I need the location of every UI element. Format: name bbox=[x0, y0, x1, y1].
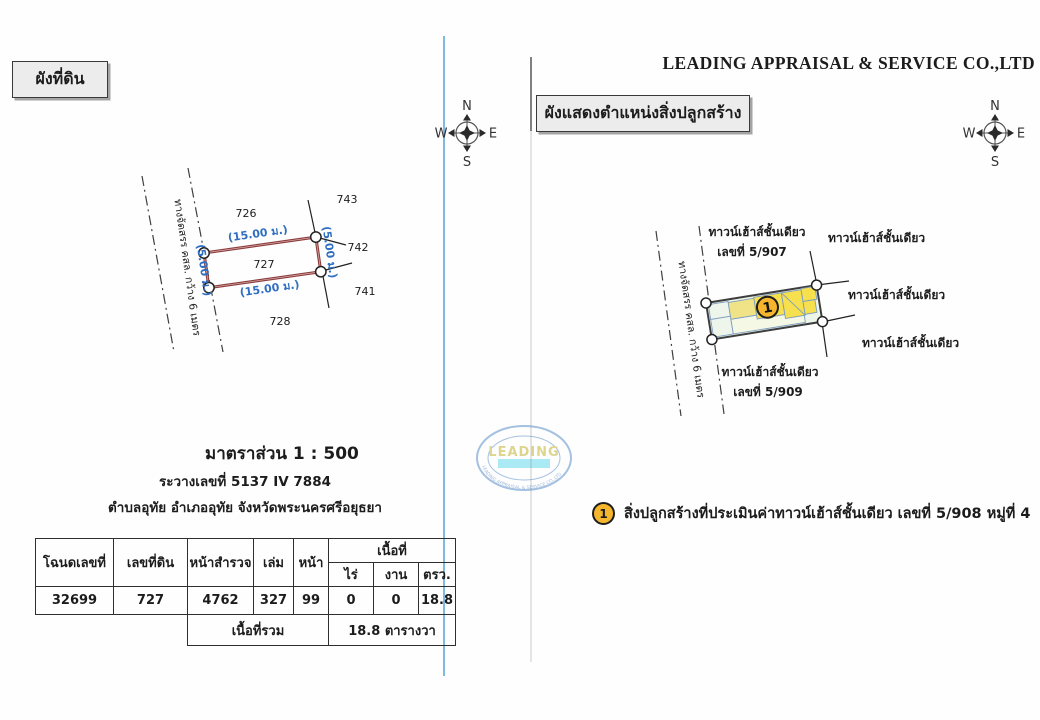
building-plot: 1 bbox=[700, 279, 828, 345]
col-parcel-no: เลขที่ดิน bbox=[114, 539, 188, 587]
parcel-743: 743 bbox=[337, 193, 358, 206]
col-deed-no: โฉนดเลขที่ bbox=[36, 539, 114, 587]
col-sqwah: ตรว. bbox=[419, 563, 456, 587]
location-line: ตำบลอุทัย อำเภออุทัย จังหวัดพระนครศรีอยุ… bbox=[30, 496, 460, 518]
compass-right: N S W E bbox=[963, 99, 1026, 170]
compass-e-label: E bbox=[1017, 127, 1025, 142]
left-title-text: ผังที่ดิน bbox=[35, 67, 84, 92]
compass-w-label: W bbox=[435, 127, 448, 142]
cell-volume: 327 bbox=[254, 587, 294, 615]
legend-marker-number: 1 bbox=[599, 507, 607, 521]
scale-label: มาตราส่วน 1 : 500 bbox=[205, 440, 359, 467]
company-header: LEADING APPRAISAL & SERVICE CO.,LTD bbox=[515, 53, 1035, 74]
cell-ngan: 0 bbox=[374, 587, 419, 615]
cell-survey-page: 4762 bbox=[188, 587, 254, 615]
legend-marker-circle: 1 bbox=[592, 502, 615, 525]
cell-total-label: เนื้อที่รวม bbox=[188, 615, 329, 646]
parcel-741: 741 bbox=[355, 285, 376, 298]
label-bottom-townhouse: ทาวน์เฮ้าส์ชั้นเดียว bbox=[721, 362, 818, 379]
compass-s-label: S bbox=[991, 155, 999, 170]
legend-text: สิ่งปลูกสร้างที่ประเมินค่าทาวน์เฮ้าส์ชั้… bbox=[624, 502, 1031, 525]
cell-parcel-no: 727 bbox=[114, 587, 188, 615]
parcel-726: 726 bbox=[236, 207, 257, 220]
col-rai: ไร่ bbox=[329, 563, 374, 587]
compass-n-label: N bbox=[462, 99, 472, 114]
right-panel-title: ผังแสดงตำแหน่งสิ่งปลูกสร้าง bbox=[536, 95, 750, 132]
parcel-742: 742 bbox=[348, 241, 369, 254]
table-ghost-cell bbox=[36, 615, 188, 646]
label-bottomright-townhouse: ทาวน์เฮ้าส์ชั้นเดียว bbox=[862, 333, 959, 350]
watermark-name: LEADING bbox=[488, 445, 559, 460]
deed-table: โฉนดเลขที่ เลขที่ดิน หน้าสำรวจ เล่ม หน้า… bbox=[35, 538, 456, 646]
cell-rai: 0 bbox=[329, 587, 374, 615]
col-ngan: งาน bbox=[374, 563, 419, 587]
label-top-townhouse: ทาวน์เฮ้าส์ชั้นเดียว bbox=[708, 222, 805, 239]
col-area-group: เนื้อที่ bbox=[329, 539, 456, 563]
compass-n-label: N bbox=[990, 99, 1000, 114]
sheet-number: ระวางเลขที่ 5137 IV 7884 bbox=[30, 470, 460, 492]
cell-total-value: 18.8 ตารางวา bbox=[329, 615, 456, 646]
compass-w-label: W bbox=[963, 127, 976, 142]
table-total-row: เนื้อที่รวม 18.8 ตารางวา bbox=[36, 615, 456, 646]
left-panel-title: ผังที่ดิน bbox=[12, 61, 108, 98]
cell-page: 99 bbox=[294, 587, 329, 615]
cell-sqwah: 18.8 bbox=[419, 587, 456, 615]
cell-deed-no: 32699 bbox=[36, 587, 114, 615]
building-legend: 1 สิ่งปลูกสร้างที่ประเมินค่าทาวน์เฮ้าส์ช… bbox=[592, 502, 1032, 525]
col-volume: เล่ม bbox=[254, 539, 294, 587]
parcel-727-label: 727 bbox=[254, 258, 275, 271]
compass-e-label: E bbox=[489, 127, 497, 142]
label-bottom-houseno: เลขที่ 5/909 bbox=[733, 383, 803, 399]
right-road-label: ทางจัดสรร คสล. กว้าง 6 เมตร bbox=[675, 260, 706, 399]
scanned-appraisal-document: LEADING LEADING APPRAISAL & SERVICE CO.,… bbox=[0, 0, 1040, 720]
table-row: 32699 727 4762 327 99 0 0 18.8 bbox=[36, 587, 456, 615]
label-right-townhouse: ทาวน์เฮ้าส์ชั้นเดียว bbox=[848, 285, 945, 302]
watermark-stamp: LEADING LEADING APPRAISAL & SERVICE CO.,… bbox=[477, 426, 571, 491]
parcel-728: 728 bbox=[270, 315, 291, 328]
label-top-houseno: เลขที่ 5/907 bbox=[717, 243, 787, 259]
label-topright-townhouse: ทาวน์เฮ้าส์ชั้นเดียว bbox=[828, 228, 925, 245]
col-page: หน้า bbox=[294, 539, 329, 587]
compass-s-label: S bbox=[463, 155, 471, 170]
neighbor-parcel-numbers: 726 743 742 741 728 727 bbox=[236, 193, 376, 328]
right-title-text: ผังแสดงตำแหน่งสิ่งปลูกสร้าง bbox=[545, 101, 742, 126]
col-survey-page: หน้าสำรวจ bbox=[188, 539, 254, 587]
